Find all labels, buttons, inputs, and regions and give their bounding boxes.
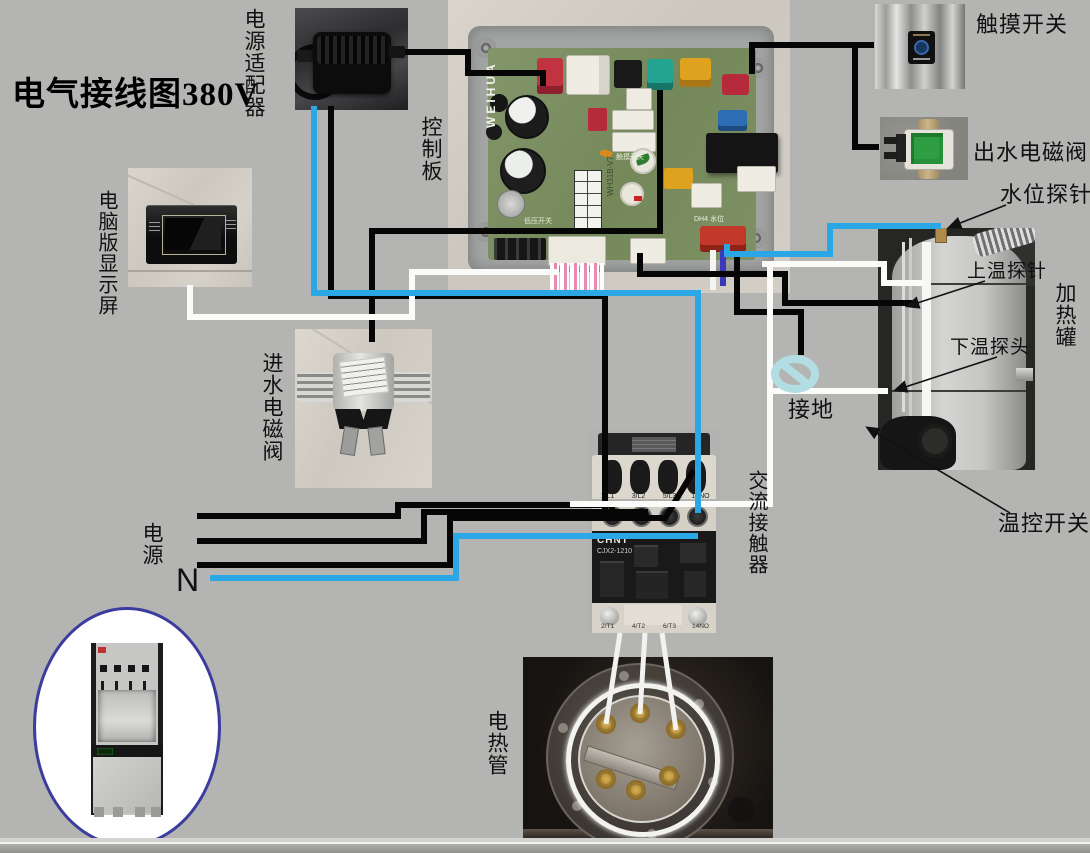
- contactor-cavity: [686, 460, 706, 494]
- dispenser-cabinet: [91, 643, 163, 815]
- terminal-label: 3/L2: [623, 493, 654, 500]
- inlet-spade-terminal: [367, 426, 385, 456]
- label-water-level-probe: 水位探针: [1000, 183, 1090, 206]
- bottom-bar: [0, 844, 1090, 853]
- yellow-connector: [680, 58, 711, 87]
- inlet-spade-terminal: [340, 426, 359, 456]
- dispenser-leg: [94, 807, 104, 817]
- dispenser-button: [142, 665, 149, 672]
- dispenser-recess: [98, 690, 156, 742]
- inlet-valve-body: [333, 353, 394, 411]
- dispenser-leg: [135, 807, 145, 817]
- water-level-wire-purple: [720, 250, 726, 286]
- contactor-bottom-plate: [624, 605, 682, 625]
- touch-switch-toptext: [913, 34, 930, 36]
- contactor-top-label: [632, 437, 676, 452]
- contactor-cube: [600, 561, 624, 597]
- ribbon-wires: [550, 263, 604, 293]
- yellow-connector-2: [664, 168, 693, 189]
- silk-touch-switch: 触摸开关: [616, 152, 644, 162]
- terminal-label: 14NO: [685, 623, 716, 630]
- brass-terminal: [596, 714, 616, 734]
- page-title: 电气接线图380V: [12, 78, 259, 113]
- tank-white-wire-bar: [922, 242, 931, 416]
- heating-tube-photo: [523, 657, 773, 845]
- tank-strap: [892, 283, 1026, 285]
- valve-spade-tab: [884, 137, 898, 144]
- tank-pump-circle: [918, 424, 952, 458]
- dispenser-tap: [101, 681, 104, 690]
- terminal-label: 6/T3: [654, 623, 685, 630]
- display-screen-photo: [128, 168, 252, 287]
- brass-terminal: [626, 780, 646, 800]
- water-level-wire-white: [710, 250, 716, 290]
- inlet-valve-photo: [295, 329, 432, 488]
- label-ac-contactor: 交流接触器: [745, 470, 766, 575]
- contactor-bottom-terminal-labels: 2/T1 4/T2 6/T3 14NO: [592, 623, 716, 630]
- contactor-body: CHNT CJX2-1210: [592, 531, 716, 603]
- adapter-plug-right: [389, 46, 405, 58]
- touch-switch-photo: [875, 4, 965, 89]
- dispenser-door: [93, 757, 161, 813]
- contactor-top-terminal-labels: 1/L1 3/L2 5/L3 13NO: [592, 493, 716, 500]
- flange-bolt: [558, 723, 568, 733]
- terminal-label: 13NO: [685, 493, 716, 500]
- label-lower-temp-probe: 下温探头: [950, 338, 1030, 358]
- valve-spade-tab: [884, 152, 898, 159]
- outlet-valve-photo: [880, 117, 968, 180]
- dispenser-mid-band: [91, 745, 163, 757]
- led-red: [634, 196, 642, 201]
- water-level-connector-red: [700, 226, 746, 252]
- label-inlet-valve: 进水电磁阀: [261, 352, 283, 462]
- dispenser-button: [100, 665, 107, 672]
- silk-water-level: DH4 水位: [694, 214, 724, 224]
- dispenser-display: [97, 748, 113, 755]
- board-model: WH31B-V7: [606, 156, 615, 196]
- dispenser-tap: [115, 681, 118, 690]
- brass-terminal: [666, 719, 686, 739]
- display-panel: [146, 205, 237, 264]
- inlet-fitting-right: [393, 372, 430, 402]
- terminal-number-grid: [574, 170, 602, 230]
- dispenser-leg: [151, 807, 161, 817]
- dispenser-button: [128, 665, 135, 672]
- contactor-cavity: [630, 460, 650, 494]
- dispenser-leg: [113, 807, 123, 817]
- display-screen: [165, 218, 221, 250]
- capacitor: [500, 148, 546, 194]
- contactor-cube: [684, 571, 706, 597]
- ac-contactor-photo: 1/L1 3/L2 5/L3 13NO CHNT CJX2-1210 2/T1: [588, 429, 720, 633]
- display-lefttext: [149, 221, 160, 231]
- label-neutral: N: [176, 564, 200, 598]
- contactor-screw-strip: [592, 502, 716, 531]
- white-4pin-connector: [566, 55, 610, 95]
- tank-side-fitting: [1016, 368, 1033, 381]
- valve-green-face: [911, 133, 943, 164]
- terminal-label: 4/T2: [623, 623, 654, 630]
- table-edge-line: [128, 270, 252, 272]
- touch-switch-panel: [908, 31, 935, 64]
- ribbon-connector: [548, 236, 606, 266]
- wire-power-phase2: [197, 512, 648, 541]
- contactor-screw: [689, 508, 706, 525]
- label-power-adapter: 电源适配器: [243, 8, 265, 118]
- contactor-cavity: [602, 460, 622, 494]
- white-2pin-right: [737, 166, 776, 192]
- contactor-cube: [634, 545, 658, 567]
- brass-terminal: [659, 766, 679, 786]
- adapter-brick: [313, 32, 391, 94]
- ground-symbol: [775, 359, 815, 389]
- contactor-cube: [680, 543, 706, 563]
- label-control-board: 控制板: [420, 116, 442, 182]
- crimson-2pin: [588, 108, 607, 131]
- white-3pin: [691, 183, 722, 208]
- white-4pin-mid: [612, 110, 654, 130]
- label-heating-tank: 加热罐: [1054, 282, 1076, 348]
- coin-battery: [497, 190, 525, 218]
- blue-connector: [718, 110, 747, 131]
- label-thermostat: 温控开关: [998, 512, 1090, 535]
- display-righttext: [226, 219, 236, 229]
- contactor-brand: CHNT: [597, 535, 629, 546]
- board-brand: WEIHUA: [484, 61, 498, 128]
- terminal-label: 5/L3: [654, 493, 685, 500]
- touch-sensor-circle: [914, 40, 929, 55]
- label-power: 电源: [141, 522, 163, 566]
- touch-switch-bottomtext: [913, 58, 930, 60]
- contactor-model: CJX2-1210: [597, 548, 632, 555]
- inlet-fitting-left: [297, 372, 334, 402]
- dispenser-logo: [98, 647, 106, 653]
- brass-terminal: [630, 703, 650, 723]
- capacitor: [505, 95, 549, 139]
- terminal-label: 1/L1: [592, 493, 623, 500]
- tank-pump: [880, 416, 956, 470]
- arrow-water-level-probe: [950, 205, 1006, 227]
- black-2pin-connector: [614, 60, 642, 88]
- wire-power-phase1: [197, 505, 612, 516]
- label-display-screen: 电脑版显示屏: [95, 190, 116, 316]
- label-touch-switch: 触摸开关: [976, 13, 1068, 36]
- crimson-connector-right: [722, 74, 749, 95]
- contactor-screw: [604, 508, 621, 525]
- adapter-plug-left: [297, 50, 313, 62]
- silk-low-pressure: 低压开关: [524, 216, 552, 226]
- white-connector-bottom: [630, 238, 666, 264]
- round-mark: [620, 182, 644, 206]
- black-pin-header: [494, 238, 546, 260]
- brass-terminal: [596, 769, 616, 789]
- flange-bolt: [619, 671, 629, 681]
- tank-thin-tube: [902, 242, 905, 412]
- adapter-ribs: [317, 36, 387, 64]
- contactor-screw: [633, 508, 650, 525]
- label-heating-tube: 电热管: [486, 710, 508, 776]
- label-ground: 接地: [788, 398, 834, 421]
- dispenser-tap: [129, 681, 132, 690]
- dispenser-button: [114, 665, 121, 672]
- marble-vein: [128, 172, 195, 206]
- tank-top-probe-fitting: [935, 228, 947, 243]
- tank-strap: [892, 390, 1026, 392]
- contactor-screw: [661, 508, 678, 525]
- water-dispenser-photo: [33, 607, 221, 847]
- teal-connector: [647, 59, 673, 90]
- contactor-cavity: [658, 460, 678, 494]
- dark-hole: [728, 797, 754, 823]
- dispenser-tap: [143, 681, 146, 690]
- red-connector: [537, 58, 563, 94]
- control-board-photo: WEIHUA WH31B-V7 触摸开关 低压开关 DH4 水位: [448, 0, 790, 293]
- power-adapter-photo: [295, 8, 408, 110]
- terminal-label: 2/T1: [592, 623, 623, 630]
- label-upper-temp-probe: 上温探针: [967, 262, 1047, 282]
- wiring-diagram-canvas: 电气接线图380V: [0, 0, 1090, 853]
- inlet-valve-label: [339, 356, 389, 397]
- label-outlet-valve: 出水电磁阀: [973, 141, 1088, 164]
- white-2pin-connector: [626, 88, 652, 110]
- contactor-cube: [636, 571, 668, 599]
